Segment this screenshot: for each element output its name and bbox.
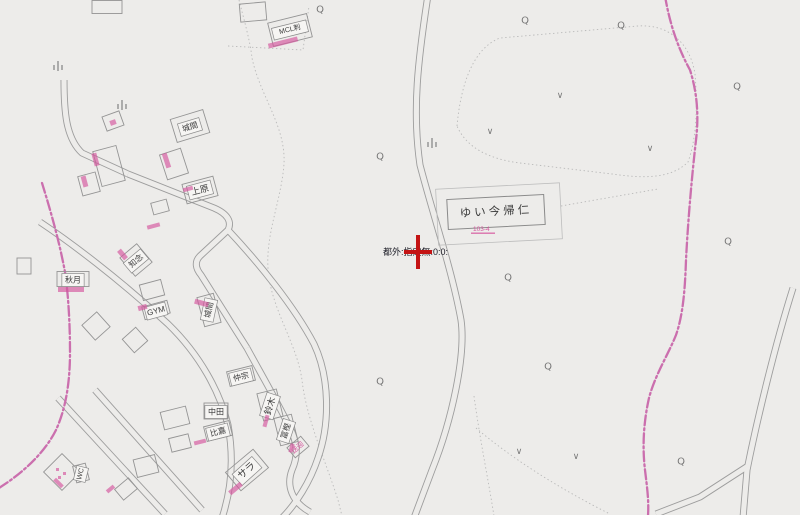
broadleaf-tree-icon: Q (724, 237, 732, 248)
map-stage: ゆい今帰仁103-4QQQQQQQQQQ∨∨∨∨∨城間上原知念秋月GYM城間仲宗… (0, 0, 800, 515)
broadleaf-tree-icon: Q (376, 377, 384, 388)
building-label: 秋月 (62, 274, 84, 287)
field-icon: ∨ (516, 446, 523, 456)
pink-annotation (56, 468, 59, 471)
broadleaf-tree-icon: Q (677, 457, 685, 468)
broadleaf-tree-icon: Q (316, 5, 324, 16)
field-icon: ∨ (647, 143, 654, 153)
svg-text:秋月: 秋月 (65, 275, 81, 285)
building-label: 中田 (205, 406, 227, 419)
pink-annotation (63, 472, 66, 475)
map-marker-cross (404, 250, 432, 253)
pink-annotation (58, 476, 61, 479)
field-icon: ∨ (487, 126, 494, 136)
pink-annotation (58, 287, 84, 292)
broadleaf-tree-icon: Q (544, 362, 552, 373)
broadleaf-tree-icon: Q (376, 152, 384, 163)
broadleaf-tree-icon: Q (617, 21, 625, 32)
broadleaf-tree-icon: Q (521, 16, 529, 27)
broadleaf-tree-icon: Q (733, 82, 741, 93)
main-building-parcel-number: 103-4 (473, 226, 490, 233)
broadleaf-tree-icon: Q (504, 273, 512, 284)
field-icon: ∨ (573, 451, 580, 461)
svg-text:中田: 中田 (208, 407, 224, 417)
field-icon: ∨ (557, 90, 564, 100)
pink-annotation (471, 233, 495, 234)
